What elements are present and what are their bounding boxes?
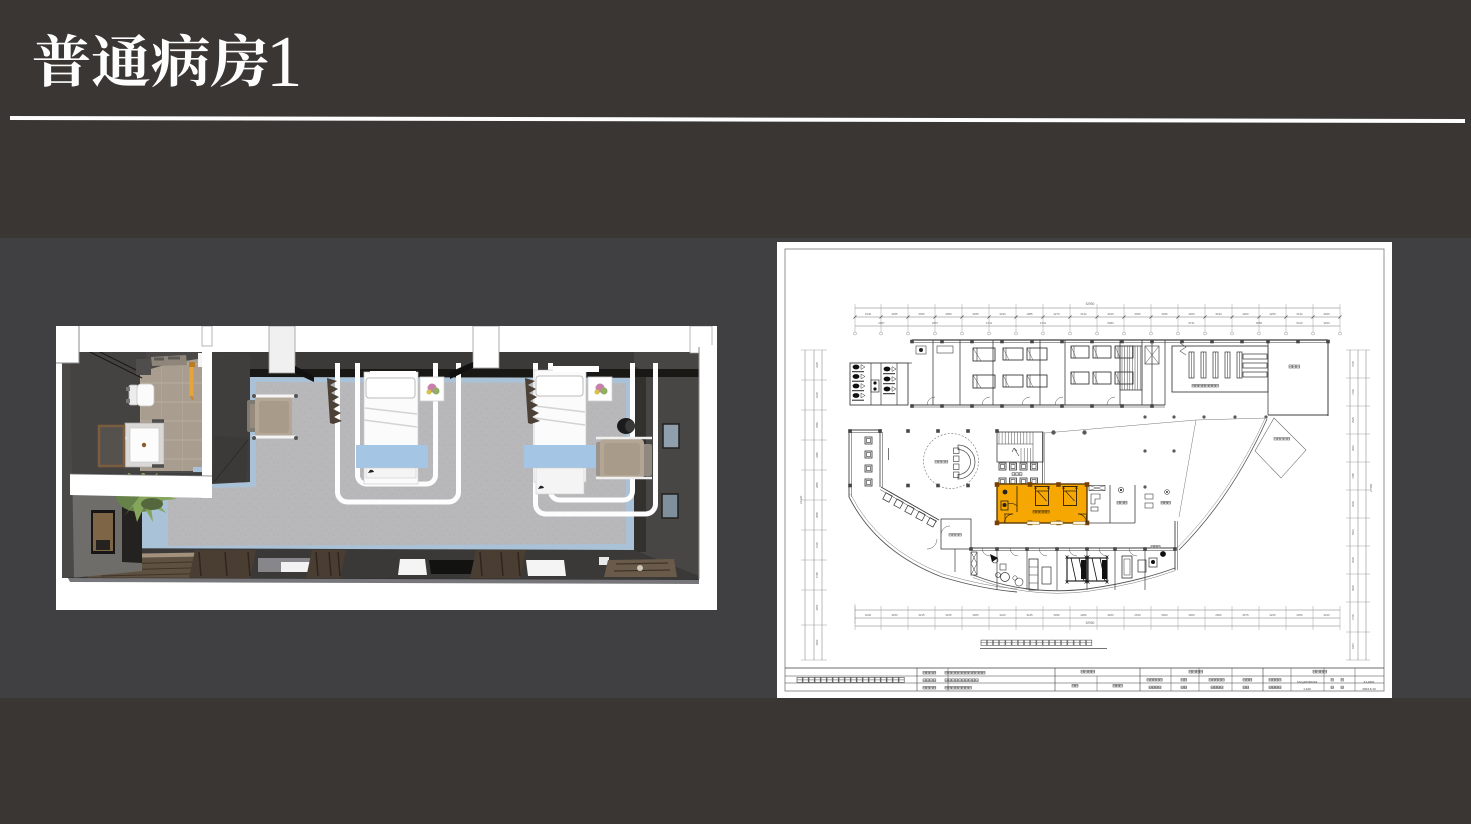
svg-text:2900: 2900	[815, 639, 819, 645]
svg-text:2900: 2900	[1215, 613, 1222, 617]
svg-text:2960: 2960	[815, 422, 819, 428]
svg-text:2024.6.13: 2024.6.13	[1362, 687, 1376, 691]
svg-text:3140: 3140	[1080, 312, 1087, 316]
svg-text:3350: 3350	[918, 312, 925, 316]
svg-text:3190: 3190	[1215, 312, 1222, 316]
svg-text:1625: 1625	[815, 392, 819, 398]
svg-text:3300: 3300	[1188, 312, 1195, 316]
svg-text:3140: 3140	[865, 312, 872, 316]
svg-text:3000: 3000	[1188, 613, 1195, 617]
svg-text:3250: 3250	[1323, 321, 1330, 325]
svg-text:7230: 7230	[1351, 389, 1355, 395]
svg-text:1545: 1545	[815, 542, 819, 548]
svg-text:3010: 3010	[1323, 613, 1330, 617]
svg-text:1: 1	[266, 21, 303, 102]
svg-text:4741: 4741	[986, 321, 993, 325]
svg-text:3910: 3910	[1351, 445, 1355, 451]
svg-text:3065: 3065	[972, 613, 979, 617]
svg-text:1815: 1815	[1351, 643, 1355, 649]
svg-text:3665: 3665	[815, 512, 819, 518]
svg-text:3250: 3250	[891, 613, 898, 617]
svg-text:3155: 3155	[945, 613, 952, 617]
svg-text:3000: 3000	[1161, 613, 1168, 617]
svg-text:4741: 4741	[1040, 321, 1047, 325]
svg-text:9741: 9741	[1188, 321, 1195, 325]
svg-text:hzsyj20240224: hzsyj20240224	[1297, 680, 1318, 684]
svg-text:3140: 3140	[1296, 312, 1303, 316]
svg-text:3255: 3255	[891, 312, 898, 316]
svg-text:2667: 2667	[932, 321, 939, 325]
svg-text:3025: 3025	[1161, 312, 1168, 316]
svg-text:52950: 52950	[1086, 621, 1095, 625]
svg-text:3220: 3220	[999, 613, 1006, 617]
svg-text:2540: 2540	[1134, 613, 1141, 617]
svg-text:4950: 4950	[815, 604, 819, 610]
svg-text:4280: 4280	[1080, 613, 1087, 617]
svg-text:3350: 3350	[1134, 312, 1141, 316]
svg-text:2700: 2700	[1351, 614, 1355, 620]
svg-text:3250: 3250	[1269, 312, 1276, 316]
svg-text:3675: 3675	[1242, 613, 1249, 617]
svg-text:3445: 3445	[1026, 613, 1033, 617]
svg-text:3200: 3200	[1242, 312, 1249, 316]
svg-text:27980: 27980	[1369, 483, 1373, 492]
svg-text:52950: 52950	[1086, 302, 1095, 306]
svg-text:1:120: 1:120	[1303, 687, 1311, 691]
svg-text:2865: 2865	[815, 482, 819, 488]
svg-text:5780: 5780	[815, 572, 819, 578]
svg-text:3390: 3390	[1053, 613, 1060, 617]
svg-text:21320: 21320	[799, 495, 803, 504]
svg-text:2925: 2925	[1351, 417, 1355, 423]
svg-text:3440: 3440	[1107, 312, 1114, 316]
svg-text:3025: 3025	[1351, 557, 1355, 563]
svg-text:5410: 5410	[1296, 321, 1303, 325]
svg-text:2667: 2667	[878, 321, 885, 325]
svg-text:3460: 3460	[1323, 312, 1330, 316]
svg-text:1985: 1985	[1026, 312, 1033, 316]
svg-text:3255: 3255	[972, 312, 979, 316]
svg-text:3225: 3225	[1269, 613, 1276, 617]
svg-text:3230: 3230	[999, 312, 1006, 316]
svg-text:3460: 3460	[815, 452, 819, 458]
svg-text:ZJ-0201: ZJ-0201	[1363, 680, 1374, 684]
svg-text:3000: 3000	[1351, 501, 1355, 507]
svg-text:3460: 3460	[1107, 613, 1114, 617]
svg-text:4125: 4125	[815, 362, 819, 368]
svg-text:4700: 4700	[1351, 361, 1355, 367]
svg-text:3350: 3350	[1296, 613, 1303, 617]
svg-text:5910: 5910	[1351, 529, 1355, 535]
svg-text:3640: 3640	[1351, 585, 1355, 591]
svg-text:▬▬▬▬: ▬▬▬▬	[887, 448, 891, 460]
svg-text:3215: 3215	[918, 613, 925, 617]
svg-text:3270: 3270	[1053, 312, 1060, 316]
svg-text:3230: 3230	[865, 613, 872, 617]
svg-text:7280: 7280	[1351, 473, 1355, 479]
svg-text:6080: 6080	[1107, 321, 1114, 325]
svg-text:3665: 3665	[1256, 321, 1263, 325]
svg-text:3050: 3050	[945, 312, 952, 316]
